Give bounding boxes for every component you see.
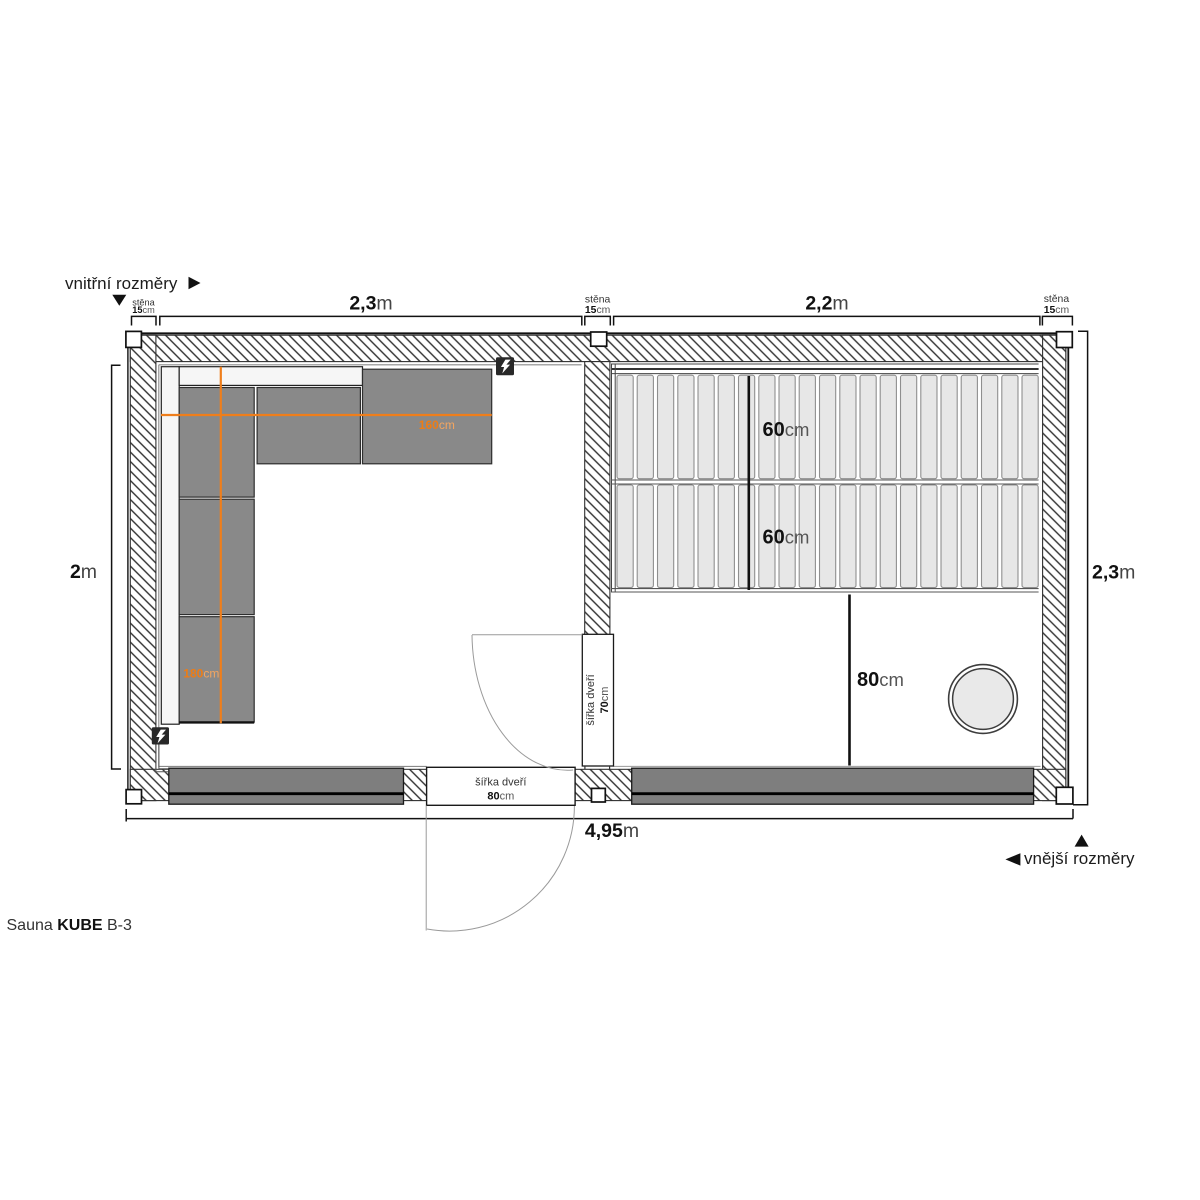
svg-text:15cm: 15cm <box>1044 305 1069 316</box>
svg-text:šířka dveří: šířka dveří <box>475 777 526 789</box>
svg-text:2,2m: 2,2m <box>805 292 848 314</box>
svg-text:vnější rozměry: vnější rozměry <box>1024 849 1135 868</box>
svg-text:80cm: 80cm <box>857 669 904 691</box>
svg-text:stěna: stěna <box>585 294 611 305</box>
svg-text:180cm: 180cm <box>183 667 219 681</box>
svg-text:2m: 2m <box>70 561 97 583</box>
svg-text:60cm: 60cm <box>763 419 810 441</box>
svg-text:šířka dveří: šířka dveří <box>585 674 597 725</box>
svg-text:4,95m: 4,95m <box>585 820 639 842</box>
svg-text:80cm: 80cm <box>487 791 514 803</box>
svg-text:vnitřní rozměry: vnitřní rozměry <box>65 274 178 293</box>
svg-text:15cm: 15cm <box>585 305 610 316</box>
svg-text:60cm: 60cm <box>763 527 810 549</box>
svg-text:70cm: 70cm <box>599 687 611 714</box>
svg-text:2,3m: 2,3m <box>1092 562 1135 584</box>
svg-text:Sauna KUBE B-3: Sauna KUBE B-3 <box>7 917 133 934</box>
svg-text:stěna: stěna <box>1044 294 1070 305</box>
svg-text:160cm: 160cm <box>419 418 455 432</box>
svg-text:2,3m: 2,3m <box>349 292 392 314</box>
svg-text:15cm: 15cm <box>132 305 155 315</box>
